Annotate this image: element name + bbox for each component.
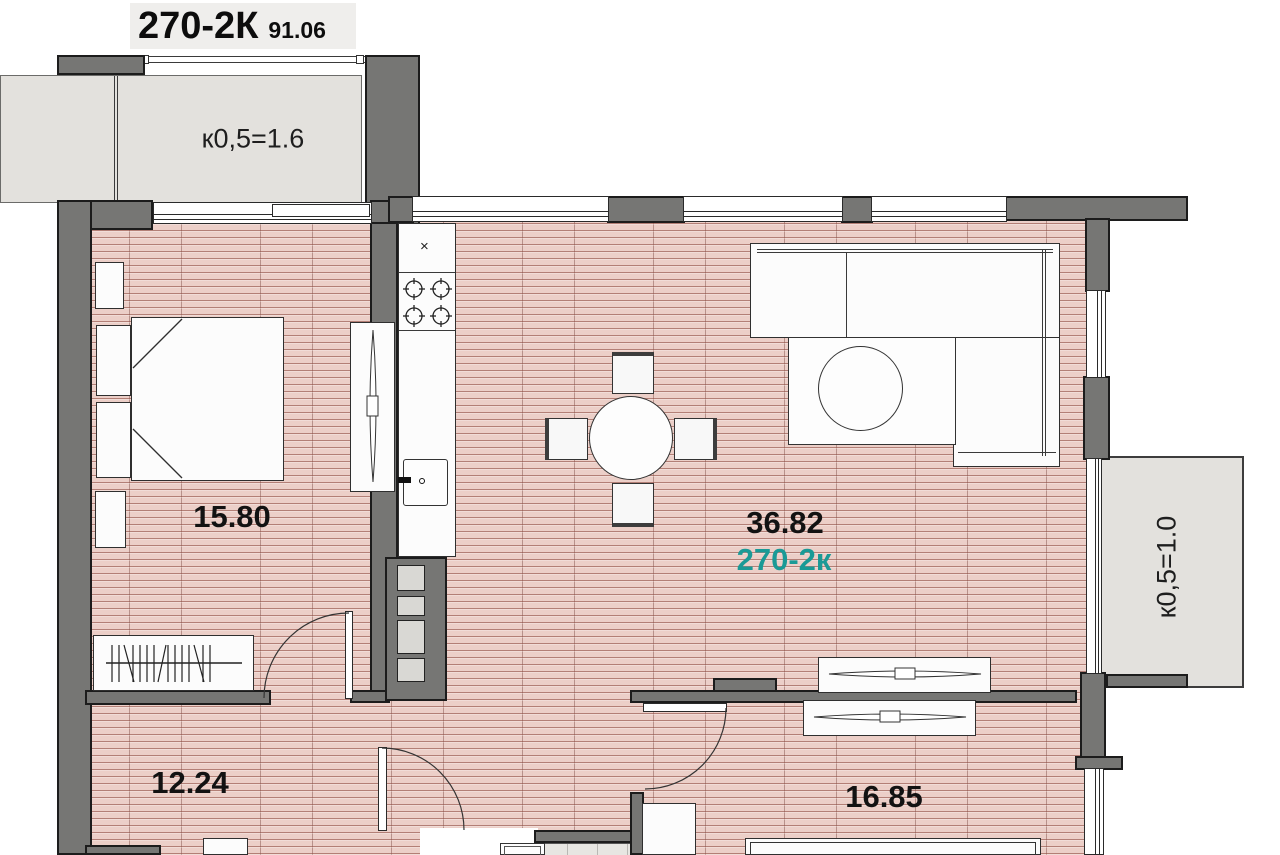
plan-total-area: 91.06 xyxy=(268,17,326,44)
bedroom2-window xyxy=(1084,768,1104,855)
nightstand-2 xyxy=(95,491,126,548)
sofa-main xyxy=(750,243,1060,338)
bed-inner-line xyxy=(750,842,1036,855)
bedroom2-area-label: 16.85 xyxy=(845,779,923,815)
wall-right-upper xyxy=(1085,218,1110,292)
balcony-right-door-window xyxy=(1086,458,1102,674)
living-window-3 xyxy=(871,196,1007,222)
sofa-chaise-seat-line xyxy=(958,452,1056,455)
wall-hall-left xyxy=(85,690,271,705)
bed-bedroom2 xyxy=(745,838,1041,855)
bathroom-floor xyxy=(538,843,630,855)
balcony-top-label: к0,5=1.6 xyxy=(202,124,305,155)
counter-section-line-1 xyxy=(399,272,455,273)
wall-left-outer xyxy=(57,200,92,855)
sofa-divider-1 xyxy=(846,253,847,337)
fridge-mark: × xyxy=(420,238,429,255)
bedroom-balcony-door xyxy=(272,204,370,217)
wall-top-pier-right xyxy=(841,196,873,223)
balcony-top-floor xyxy=(0,75,362,203)
plan-code: 270-2К xyxy=(138,3,258,49)
bed-pillow-1 xyxy=(96,325,131,396)
sink-drain-icon xyxy=(419,478,425,484)
dresser-mirror-icon xyxy=(810,710,970,724)
stove-burners-icon xyxy=(400,276,454,330)
dining-chair-right xyxy=(674,418,717,460)
floor-plan: × xyxy=(0,0,1280,855)
bedroom-area-label: 15.80 xyxy=(193,499,271,535)
door-leaf-bathroom xyxy=(378,747,387,831)
bathroom-sink-inner xyxy=(504,846,541,855)
wall-top-left-corner xyxy=(57,55,145,75)
balcony-divider-line xyxy=(114,76,118,202)
glazing-post-right xyxy=(356,55,364,64)
dining-chair-left xyxy=(545,418,588,460)
nightstand-1 xyxy=(95,262,124,309)
cutoff-furniture xyxy=(203,838,248,855)
living-window-2 xyxy=(683,196,843,222)
coffee-table xyxy=(818,346,903,431)
dresser-mirror-icon xyxy=(825,667,985,681)
living-window-right xyxy=(1086,290,1106,378)
dining-chair-bottom xyxy=(612,483,654,527)
wardrobe-mirror-icon xyxy=(366,326,380,486)
vent-duct-1 xyxy=(397,565,425,591)
wall-top-pier-mid xyxy=(607,196,685,223)
wall-right-mid xyxy=(1083,376,1110,460)
bed-double xyxy=(131,317,284,481)
vent-duct-2 xyxy=(397,596,425,616)
kitchen-counter xyxy=(398,223,456,557)
door-leaf-bedroom2 xyxy=(643,703,727,712)
living-area-label: 36.82 xyxy=(746,505,824,541)
coat-rack xyxy=(93,635,254,691)
wall-bottom-left-stub xyxy=(85,845,161,855)
wall-hall-mid-stub xyxy=(350,690,390,703)
balcony-glazing-line xyxy=(144,56,366,63)
wardrobe-bedroom2 xyxy=(642,803,696,855)
counter-section-line-2 xyxy=(399,330,455,331)
hall-area-label: 12.24 xyxy=(151,765,229,801)
vent-duct-3 xyxy=(397,620,425,654)
wardrobe-bedroom xyxy=(350,322,395,492)
door-leaf-bedroom xyxy=(345,611,353,699)
bed-pillow-2 xyxy=(96,402,131,478)
wall-right-lower xyxy=(1080,672,1106,758)
sofa-back-line xyxy=(757,249,1053,253)
wall-hall-right-bump xyxy=(713,678,777,692)
blanket-fold-lines-icon xyxy=(132,318,285,479)
dresser-bedroom2 xyxy=(803,700,976,736)
plan-title: 270-2К 91.06 xyxy=(130,3,356,49)
dining-table xyxy=(589,396,673,480)
living-unit-label: 270-2к xyxy=(737,542,832,578)
living-window-1 xyxy=(412,196,609,222)
balcony-right-label: к0,5=1.0 xyxy=(1152,516,1183,619)
wall-balcony-pier xyxy=(365,55,420,205)
wall-balcony-right-bottom xyxy=(1106,674,1188,688)
wall-bathroom-top xyxy=(534,830,632,843)
dining-chair-top xyxy=(612,352,654,394)
sofa-chaise-back-line xyxy=(1042,250,1046,456)
vent-duct-4 xyxy=(397,658,425,682)
wall-top-pier-left xyxy=(388,196,414,223)
coat-hangers-icon xyxy=(94,636,252,689)
dresser-living xyxy=(818,657,991,693)
sink-faucet-icon xyxy=(398,477,411,483)
bathroom-sink xyxy=(500,843,545,855)
